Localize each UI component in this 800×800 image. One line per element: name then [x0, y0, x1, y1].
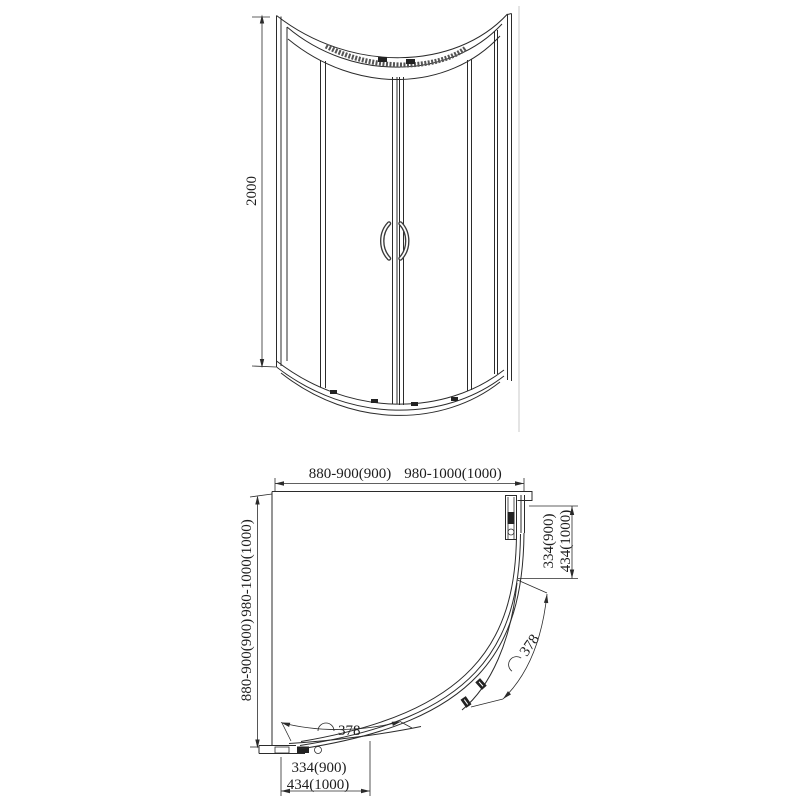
top-rail-clip: [378, 57, 387, 62]
front-elevation-view: 2000: [244, 6, 519, 432]
drawing-canvas: 2000: [0, 0, 800, 800]
plan-left-dimension: 980-1000(1000) 880-900(900): [239, 494, 272, 749]
plan-bottom-dimension: 334(900) 434(1000): [281, 741, 370, 796]
left-dim-label-b: 980-1000(1000): [239, 519, 255, 617]
bottom-guide: [451, 397, 458, 401]
technical-drawing: 2000: [0, 0, 800, 800]
door-handle-left: [382, 224, 389, 259]
curved-frame-outer: [300, 533, 524, 749]
bottom-arc-dim-label: 378: [338, 723, 361, 739]
plan-right-dimension: 334(900) 434(1000): [518, 506, 578, 579]
curved-frame-mid: [300, 534, 521, 746]
arc-length-symbol: [505, 653, 521, 671]
bottom-dim-label-b: 434(1000): [287, 777, 350, 793]
bottom-door-arc-dimension: 378: [280, 719, 412, 741]
roller: [461, 696, 472, 708]
top-wall-line: [272, 492, 532, 501]
dimension-height-2000: 2000: [244, 15, 276, 369]
bottom-guide: [330, 390, 337, 394]
bottom-beam-top-curve: [277, 361, 505, 404]
bottom-dim-label-a: 334(900): [292, 760, 347, 776]
top-dim-label-b: 980-1000(1000): [404, 466, 502, 482]
left-dim-label-a: 880-900(900): [239, 619, 255, 702]
height-dim-label: 2000: [244, 176, 260, 206]
top-beam-outer-curve: [277, 14, 508, 58]
top-rail-hatch: [326, 46, 466, 65]
top-dim-label-a: 880-900(900): [309, 466, 392, 482]
wall-profile-top-right: [506, 495, 525, 540]
roller: [475, 678, 486, 690]
plan-top-dimension: 880-900(900) 980-1000(1000): [275, 466, 524, 492]
right-dim-label-b: 434(1000): [558, 510, 574, 573]
curved-frame-inner: [301, 535, 517, 742]
bottom-guide: [411, 402, 418, 406]
bottom-guide: [371, 399, 378, 403]
plan-view: 880-900(900) 980-1000(1000) 980-1000(100…: [239, 466, 578, 796]
top-rail-clip: [406, 59, 415, 64]
right-dim-label-a: 334(900): [541, 514, 557, 569]
panel-stiles: [321, 59, 472, 405]
